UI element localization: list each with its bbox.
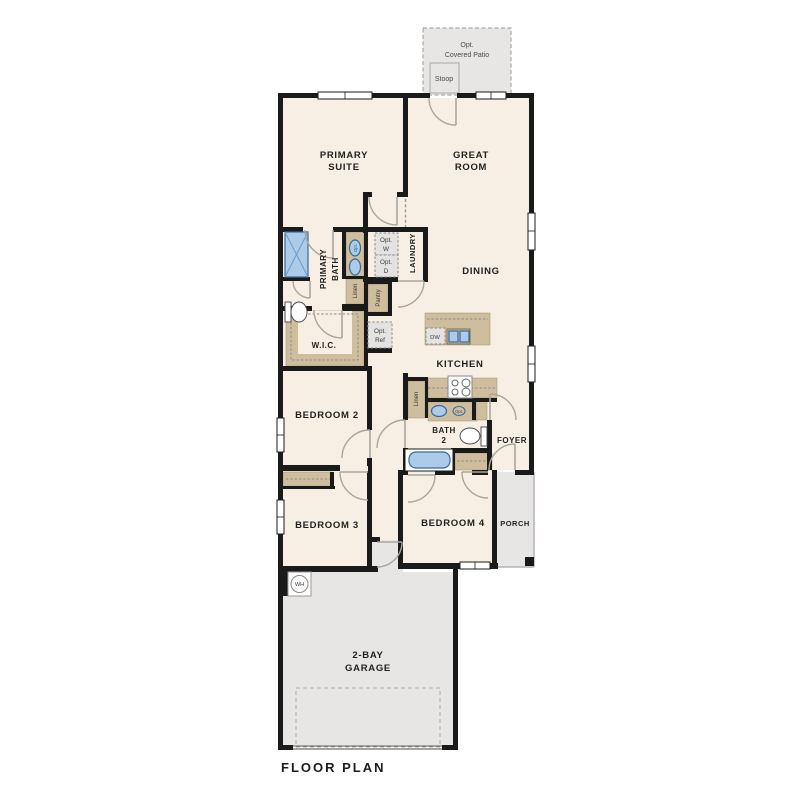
water-heater-label: WH <box>295 582 304 588</box>
porch-post <box>525 557 534 566</box>
patio-label-line1: Opt. <box>460 42 473 49</box>
garage-label-line2: GARAGE <box>345 663 391 674</box>
primary-toilet <box>285 302 307 322</box>
great-room-label2: ROOM <box>455 162 487 173</box>
primary-suite-label2: SUITE <box>328 162 359 173</box>
window-primary-suite <box>318 92 372 99</box>
laundry-label: LAUNDRY <box>408 233 417 273</box>
window-bedroom2 <box>277 418 284 452</box>
water-heater: WH <box>288 572 311 596</box>
bedroom4-closet <box>455 453 492 470</box>
stoop-label: Stoop <box>435 76 453 83</box>
primary-bath-label2: BATH <box>331 257 340 281</box>
optional-washer-label1: Opt. <box>380 237 392 244</box>
linen-primary-label: Linen <box>353 284 359 299</box>
window-dining-right-1 <box>528 213 535 250</box>
patio-label-line2: Covered Patio <box>445 52 489 59</box>
window-great-room <box>476 92 506 99</box>
optional-fridge-box <box>368 322 392 348</box>
bedroom2-label: BEDROOM 2 <box>295 410 359 421</box>
window-bedroom4 <box>460 562 490 569</box>
window-bedroom3 <box>277 500 284 534</box>
linen-hall-label: Linen <box>414 392 420 407</box>
optional-sink2-label: Opt. <box>455 409 463 414</box>
great-room-label1: GREAT <box>453 150 489 161</box>
porch: PORCH <box>497 472 534 567</box>
bedroom4-label: BEDROOM 4 <box>421 518 485 529</box>
plan-title: FLOOR PLAN <box>281 760 386 775</box>
bath2-label2: 2 <box>442 436 447 445</box>
shower <box>285 232 308 277</box>
bedroom3-label: BEDROOM 3 <box>295 520 359 531</box>
foyer-label: FOYER <box>497 436 527 445</box>
porch-label: PORCH <box>500 519 530 528</box>
stove <box>448 376 472 398</box>
optional-dryer-label2: D <box>384 268 389 275</box>
optional-sink-label: Opt. <box>353 244 358 252</box>
primary-bath-label1: PRIMARY <box>319 249 328 289</box>
primary-suite-label1: PRIMARY <box>320 150 368 161</box>
bathtub <box>405 449 453 471</box>
wic-label: W.I.C. <box>312 341 337 350</box>
pantry-label: Pantry <box>376 289 382 306</box>
optional-fridge-label1: Opt. <box>374 328 386 335</box>
dishwasher-label: DW <box>430 335 440 341</box>
kitchen-label: KITCHEN <box>436 359 483 370</box>
window-kitchen-right-2 <box>528 346 535 382</box>
floor-plan-drawing: Opt. Covered Patio Stoop PORCH 2-BAY GAR… <box>0 0 810 810</box>
optional-fridge-label2: Ref <box>375 337 385 344</box>
optional-washer-label2: W <box>383 246 389 253</box>
kitchen-island-sink <box>447 329 470 344</box>
optional-dryer-label1: Opt. <box>380 259 392 266</box>
stoop: Stoop <box>430 63 459 93</box>
garage-label-line1: 2-BAY <box>352 650 383 661</box>
dining-label: DINING <box>462 266 499 277</box>
floor-plan-canvas: Opt. Covered Patio Stoop PORCH 2-BAY GAR… <box>0 0 810 810</box>
bath2-label1: BATH <box>432 426 456 435</box>
